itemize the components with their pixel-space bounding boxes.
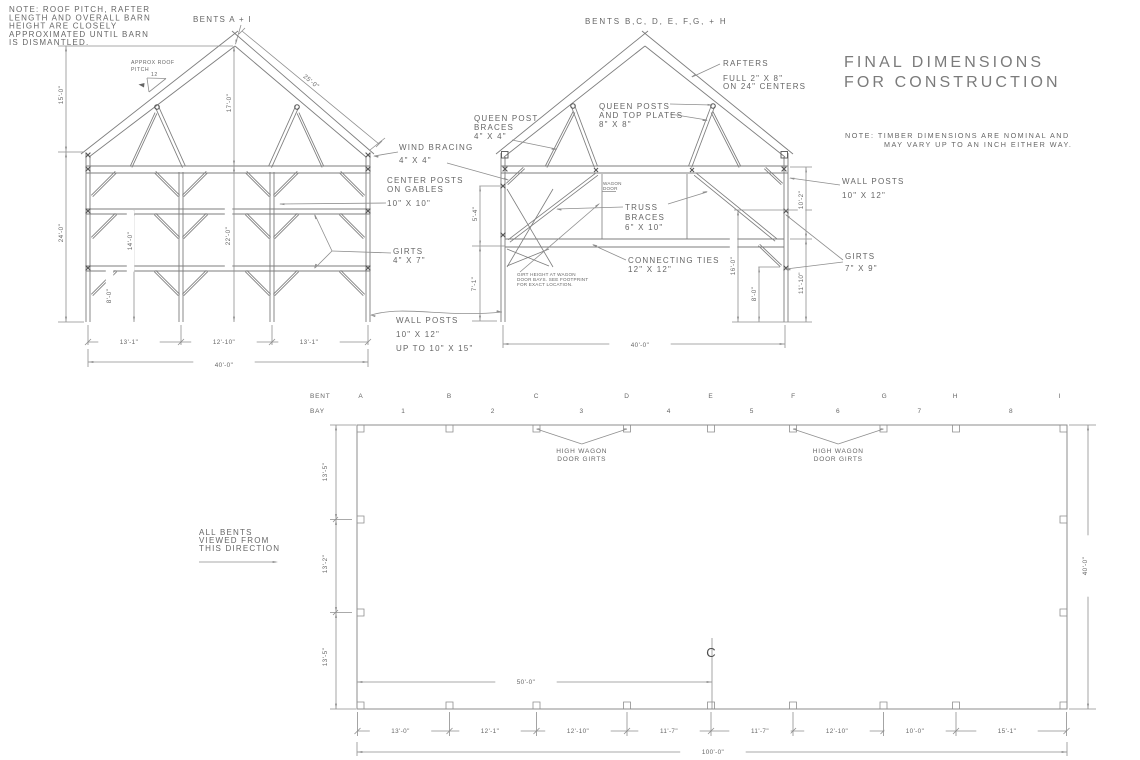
svg-text:DOOR GIRTS: DOOR GIRTS	[814, 456, 863, 463]
svg-text:THIS DIRECTION: THIS DIRECTION	[199, 544, 280, 553]
svg-text:4: 4	[667, 408, 671, 415]
svg-text:DOOR: DOOR	[603, 186, 618, 191]
svg-text:50'-0": 50'-0"	[517, 679, 535, 686]
svg-text:13'-1": 13'-1"	[300, 339, 318, 346]
svg-text:H: H	[953, 393, 959, 400]
svg-text:HIGH WAGON: HIGH WAGON	[813, 448, 864, 455]
svg-text:G: G	[882, 393, 888, 400]
svg-text:WIND BRACING: WIND BRACING	[399, 143, 473, 152]
svg-text:12'-10": 12'-10"	[567, 728, 589, 735]
svg-text:B: B	[447, 393, 452, 400]
svg-text:TRUSS: TRUSS	[625, 203, 658, 212]
svg-text:GIRTS: GIRTS	[845, 252, 875, 261]
svg-text:5'-4": 5'-4"	[472, 207, 479, 222]
svg-text:24'-0": 24'-0"	[58, 224, 65, 242]
svg-text:NOTE: TIMBER DIMENSIONS ARE N: NOTE: TIMBER DIMENSIONS ARE NOMINAL AND	[845, 131, 1070, 140]
svg-text:APPROX ROOF: APPROX ROOF	[131, 60, 175, 66]
svg-text:HIGH WAGON: HIGH WAGON	[556, 448, 607, 455]
svg-text:C: C	[706, 645, 715, 660]
svg-text:8'-0": 8'-0"	[106, 289, 113, 304]
svg-text:13'-1": 13'-1"	[120, 339, 138, 346]
svg-text:8" X 8": 8" X 8"	[599, 120, 632, 129]
svg-text:12" X 12": 12" X 12"	[628, 265, 672, 274]
svg-text:13'-0": 13'-0"	[391, 728, 409, 735]
svg-text:FINAL DIMENSIONS: FINAL DIMENSIONS	[844, 54, 1044, 71]
svg-text:12: 12	[151, 72, 158, 78]
svg-text:CONNECTING TIES: CONNECTING TIES	[628, 256, 720, 265]
svg-text:MAY VARY UP TO AN INCH EITHER: MAY VARY UP TO AN INCH EITHER WAY.	[884, 140, 1072, 149]
svg-text:4" X 4": 4" X 4"	[474, 132, 507, 141]
svg-text:1: 1	[401, 408, 405, 415]
svg-text:17'-0": 17'-0"	[226, 94, 233, 112]
svg-text:6: 6	[836, 408, 840, 415]
svg-text:FOR CONSTRUCTION: FOR CONSTRUCTION	[844, 74, 1061, 91]
svg-text:CENTER POSTS: CENTER POSTS	[387, 176, 464, 185]
svg-text:11'-7": 11'-7"	[660, 728, 678, 735]
svg-text:40'-0": 40'-0"	[1082, 557, 1089, 575]
svg-text:7" X 9": 7" X 9"	[845, 264, 878, 273]
svg-text:40'-0": 40'-0"	[215, 362, 233, 369]
svg-text:D: D	[624, 393, 630, 400]
svg-text:100'-0": 100'-0"	[702, 749, 724, 756]
svg-text:16'-0": 16'-0"	[730, 257, 737, 275]
svg-text:22'-0": 22'-0"	[225, 227, 232, 245]
svg-text:6" X 10": 6" X 10"	[625, 223, 663, 232]
svg-text:QUEEN POSTS: QUEEN POSTS	[599, 102, 670, 111]
svg-text:10'-0": 10'-0"	[906, 728, 924, 735]
svg-text:QUEEN POST: QUEEN POST	[474, 114, 538, 123]
svg-text:12'-1": 12'-1"	[481, 728, 499, 735]
svg-text:5: 5	[750, 408, 754, 415]
svg-text:11'-7": 11'-7"	[751, 728, 769, 735]
svg-text:4" X 4": 4" X 4"	[399, 156, 432, 165]
svg-text:RAFTERS: RAFTERS	[723, 59, 769, 68]
svg-text:10" X 12": 10" X 12"	[842, 191, 886, 200]
svg-text:BENTS A + I: BENTS A + I	[193, 15, 252, 24]
svg-text:BRACES: BRACES	[625, 213, 665, 222]
svg-text:UP TO 10" X 15": UP TO 10" X 15"	[396, 344, 474, 353]
svg-text:BENT: BENT	[310, 393, 331, 400]
svg-text:F: F	[791, 393, 796, 400]
svg-text:11'-10": 11'-10"	[798, 272, 805, 294]
svg-text:10'-2": 10'-2"	[798, 191, 805, 209]
svg-text:15'-0": 15'-0"	[58, 86, 65, 104]
svg-text:E: E	[708, 393, 713, 400]
svg-text:13'-5": 13'-5"	[322, 463, 329, 481]
svg-text:I: I	[1059, 393, 1062, 400]
svg-text:15'-1": 15'-1"	[998, 728, 1016, 735]
svg-text:ON 24" CENTERS: ON 24" CENTERS	[723, 82, 806, 91]
svg-text:FOR EXACT LOCATION.: FOR EXACT LOCATION.	[517, 282, 573, 287]
svg-text:BENTS B,C, D, E, F,G, + H: BENTS B,C, D, E, F,G, + H	[585, 17, 728, 26]
svg-text:WALL POSTS: WALL POSTS	[842, 177, 905, 186]
svg-text:AND TOP PLATES: AND TOP PLATES	[599, 111, 683, 120]
svg-text:C: C	[534, 393, 540, 400]
svg-text:WALL POSTS: WALL POSTS	[396, 316, 459, 325]
svg-text:7: 7	[918, 408, 922, 415]
svg-text:BRACES: BRACES	[474, 123, 514, 132]
svg-text:3: 3	[580, 408, 584, 415]
svg-text:40'-0": 40'-0"	[631, 342, 649, 349]
svg-text:8'-0": 8'-0"	[751, 287, 758, 302]
svg-text:13'-5": 13'-5"	[322, 648, 329, 666]
svg-text:ON GABLES: ON GABLES	[387, 185, 444, 194]
svg-text:BAY: BAY	[310, 408, 325, 415]
svg-text:7'-1": 7'-1"	[471, 277, 478, 292]
svg-text:A: A	[358, 393, 363, 400]
svg-text:10" X 10": 10" X 10"	[387, 199, 431, 208]
svg-text:12'-10": 12'-10"	[213, 339, 235, 346]
svg-text:GIRTS: GIRTS	[393, 247, 423, 256]
svg-text:13'-2": 13'-2"	[322, 555, 329, 573]
svg-text:12'-10": 12'-10"	[826, 728, 848, 735]
svg-text:PITCH: PITCH	[131, 67, 149, 73]
svg-text:14'-0": 14'-0"	[127, 232, 134, 250]
svg-text:4" X 7": 4" X 7"	[393, 256, 426, 265]
svg-text:8: 8	[1009, 408, 1013, 415]
svg-text:2: 2	[491, 408, 495, 415]
svg-text:DOOR GIRTS: DOOR GIRTS	[557, 456, 606, 463]
svg-text:10" X 12": 10" X 12"	[396, 330, 440, 339]
